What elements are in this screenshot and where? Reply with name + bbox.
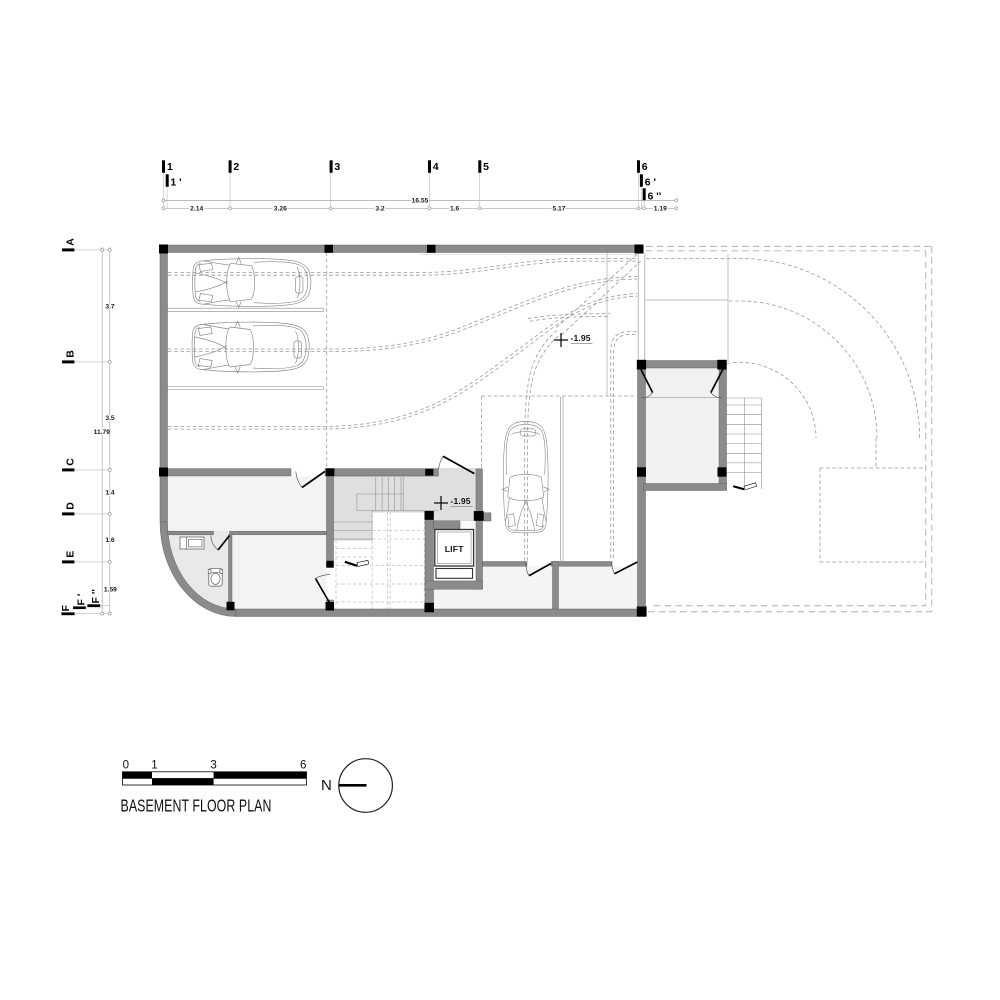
- svg-text:1 ': 1 ': [170, 177, 181, 189]
- svg-text:F '': F '': [90, 589, 102, 603]
- svg-text:6: 6: [300, 760, 306, 772]
- svg-text:3: 3: [334, 161, 340, 173]
- svg-text:B: B: [65, 350, 77, 358]
- svg-text:1.6: 1.6: [450, 206, 460, 213]
- svg-text:5: 5: [483, 161, 489, 173]
- svg-text:C: C: [65, 458, 77, 466]
- svg-text:11.79: 11.79: [94, 429, 111, 436]
- svg-text:6: 6: [642, 161, 648, 173]
- svg-text:1.6: 1.6: [105, 537, 115, 544]
- svg-text:1: 1: [151, 760, 157, 772]
- svg-text:1: 1: [167, 161, 173, 173]
- svg-text:6 ': 6 ': [645, 177, 656, 189]
- svg-text:3.26: 3.26: [274, 206, 287, 213]
- svg-text:-1.95: -1.95: [451, 496, 471, 506]
- svg-text:0: 0: [123, 760, 129, 772]
- svg-text:3: 3: [210, 760, 216, 772]
- svg-text:2.14: 2.14: [190, 206, 203, 213]
- svg-text:2: 2: [233, 161, 239, 173]
- svg-text:D: D: [65, 502, 77, 510]
- svg-text:BASEMENT FLOOR PLAN: BASEMENT FLOOR PLAN: [121, 797, 272, 817]
- svg-text:LIFT: LIFT: [445, 544, 464, 554]
- svg-text:3.2: 3.2: [375, 206, 385, 213]
- svg-text:1.19: 1.19: [654, 206, 667, 213]
- svg-text:5.17: 5.17: [552, 206, 565, 213]
- svg-text:-1.95: -1.95: [571, 333, 591, 343]
- svg-text:3.5: 3.5: [105, 415, 115, 422]
- svg-text:4: 4: [433, 161, 439, 173]
- svg-text:F: F: [60, 605, 72, 612]
- svg-text:N: N: [321, 777, 332, 794]
- svg-text:E: E: [65, 551, 77, 558]
- svg-text:16.55: 16.55: [412, 197, 429, 204]
- svg-text:3.7: 3.7: [105, 304, 115, 311]
- svg-text:1.59: 1.59: [104, 587, 117, 594]
- svg-text:A: A: [65, 238, 77, 246]
- svg-text:F ': F ': [76, 594, 88, 606]
- svg-text:1.4: 1.4: [105, 490, 115, 497]
